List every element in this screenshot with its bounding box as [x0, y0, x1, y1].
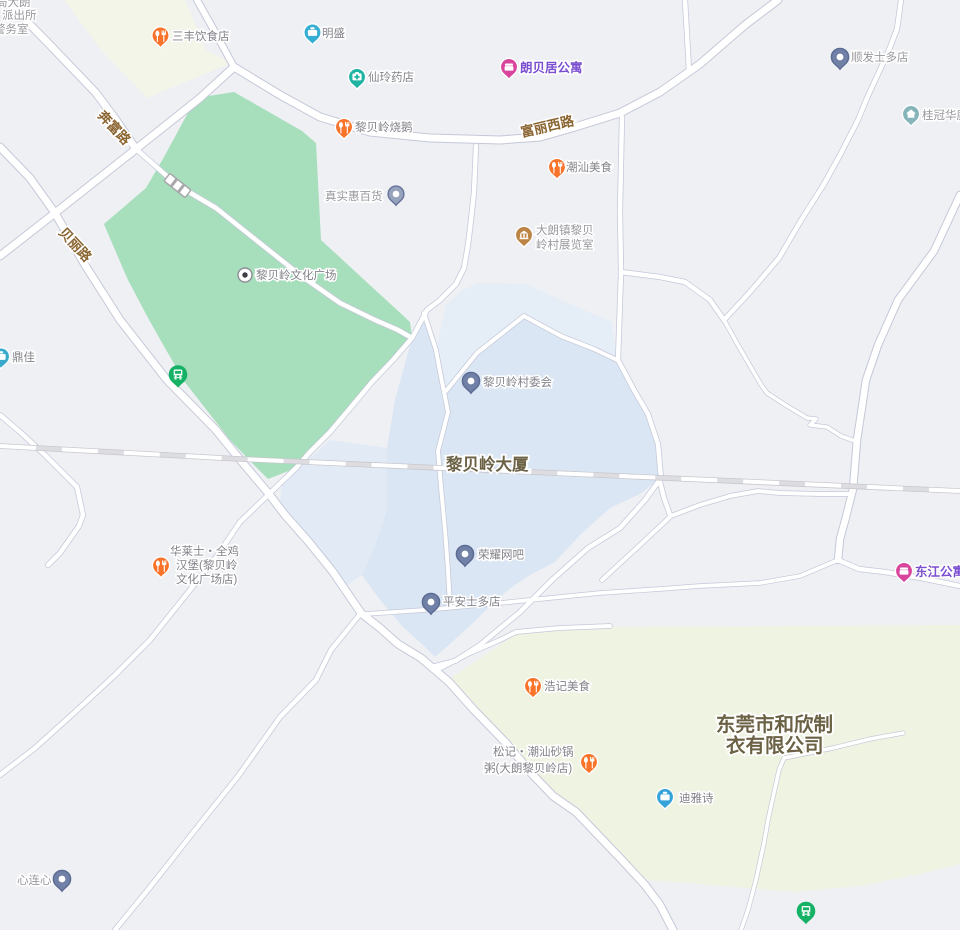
svg-text:浩记美食: 浩记美食	[544, 679, 590, 693]
svg-text:局大朗: 局大朗	[0, 0, 31, 9]
svg-text:汉堡(黎贝岭: 汉堡(黎贝岭	[176, 558, 238, 572]
svg-text:粥(大朗黎贝岭店): 粥(大朗黎贝岭店)	[484, 761, 572, 775]
svg-text:荣耀网吧: 荣耀网吧	[478, 549, 524, 562]
svg-text:朗贝居公寓: 朗贝居公寓	[520, 60, 583, 75]
svg-text:黎贝岭文化广场: 黎贝岭文化广场	[256, 268, 337, 282]
svg-text:黎贝岭大厦: 黎贝岭大厦	[446, 454, 529, 474]
svg-text:明盛: 明盛	[322, 26, 345, 40]
svg-text:三丰饮食店: 三丰饮食店	[172, 29, 230, 43]
svg-text:东莞市和欣制: 东莞市和欣制	[716, 713, 833, 736]
svg-text:文化广场店): 文化广场店)	[176, 572, 237, 586]
svg-text:顺发士多店: 顺发士多店	[851, 50, 909, 64]
svg-text:派出所: 派出所	[2, 8, 37, 22]
svg-text:迪雅诗: 迪雅诗	[679, 791, 714, 805]
svg-text:黎贝岭烧鹅: 黎贝岭烧鹅	[355, 120, 413, 134]
svg-text:东江公寓: 东江公寓	[915, 564, 960, 579]
svg-text:平安士多店: 平安士多店	[443, 595, 501, 609]
svg-text:岭村展览室: 岭村展览室	[536, 238, 594, 252]
svg-text:潮汕美食: 潮汕美食	[566, 160, 612, 174]
svg-text:衣有限公司: 衣有限公司	[726, 734, 824, 757]
svg-text:黎贝岭村委会: 黎贝岭村委会	[483, 375, 552, 389]
svg-text:心连心: 心连心	[17, 873, 52, 887]
svg-text:鼎佳: 鼎佳	[12, 350, 35, 364]
svg-text:仙玲药店: 仙玲药店	[368, 70, 414, 84]
svg-text:大朗镇黎贝: 大朗镇黎贝	[536, 223, 594, 237]
svg-text:松记・潮汕砂锅: 松记・潮汕砂锅	[493, 745, 574, 759]
svg-text:桂冠华庭: 桂冠华庭	[922, 108, 960, 122]
svg-text:警务室: 警务室	[0, 22, 29, 36]
svg-text:真实惠百货: 真实惠百货	[325, 189, 383, 203]
svg-text:华莱士・全鸡: 华莱士・全鸡	[170, 544, 239, 558]
